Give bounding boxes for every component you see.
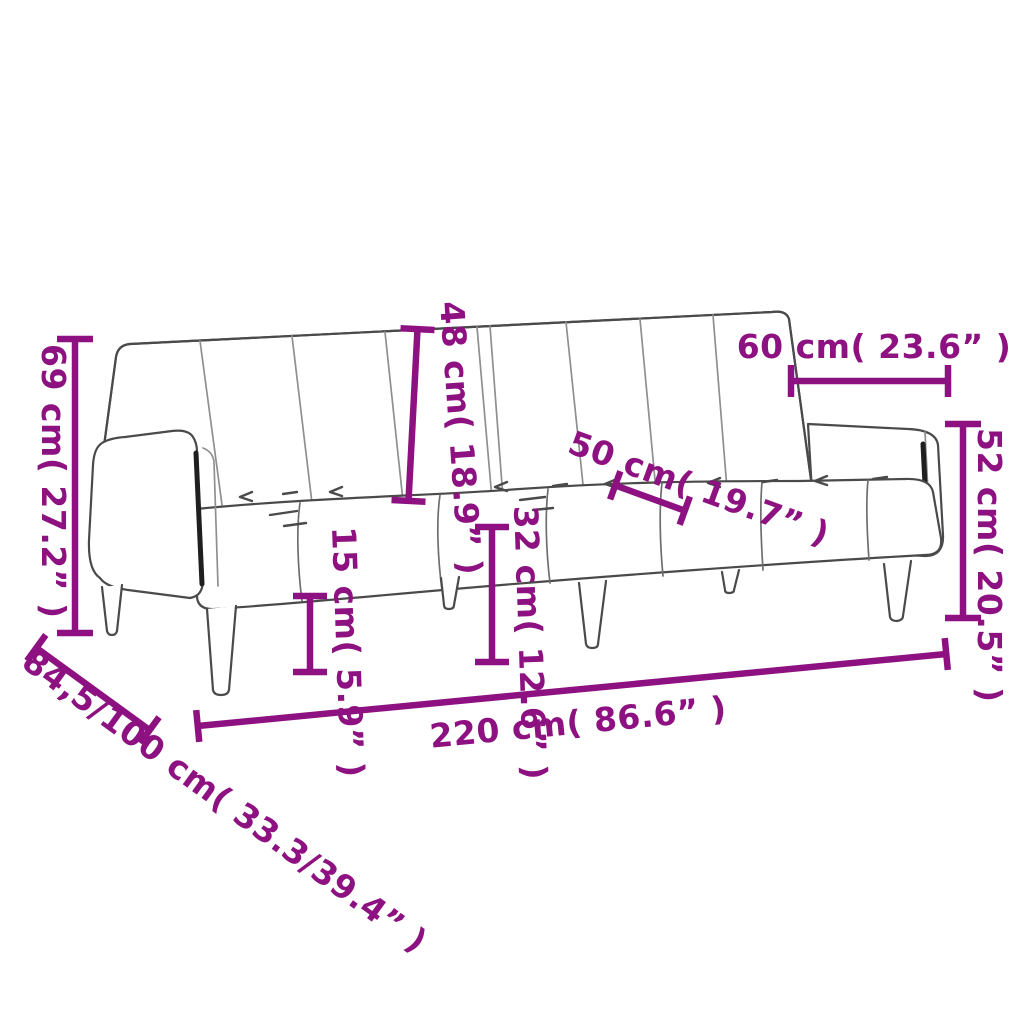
product-dimension-image: 69 cm( 27.2” ) 48 cm( 18.9” ) 60 cm( 23.… [0,0,1024,1024]
dimension-label-backrest-section-width: 60 cm( 23.6” ) [737,327,1012,366]
dimension-armrest-height: 52 cm( 20.5” ) [945,424,1009,703]
dimension-label-overall-height: 69 cm( 27.2” ) [34,344,73,619]
dimension-label-leg-height: 15 cm( 5.9” ) [324,526,372,778]
dimension-label-armrest-height: 52 cm( 20.5” ) [970,428,1009,703]
dimension-overall-height: 69 cm( 27.2” ) [34,339,93,633]
